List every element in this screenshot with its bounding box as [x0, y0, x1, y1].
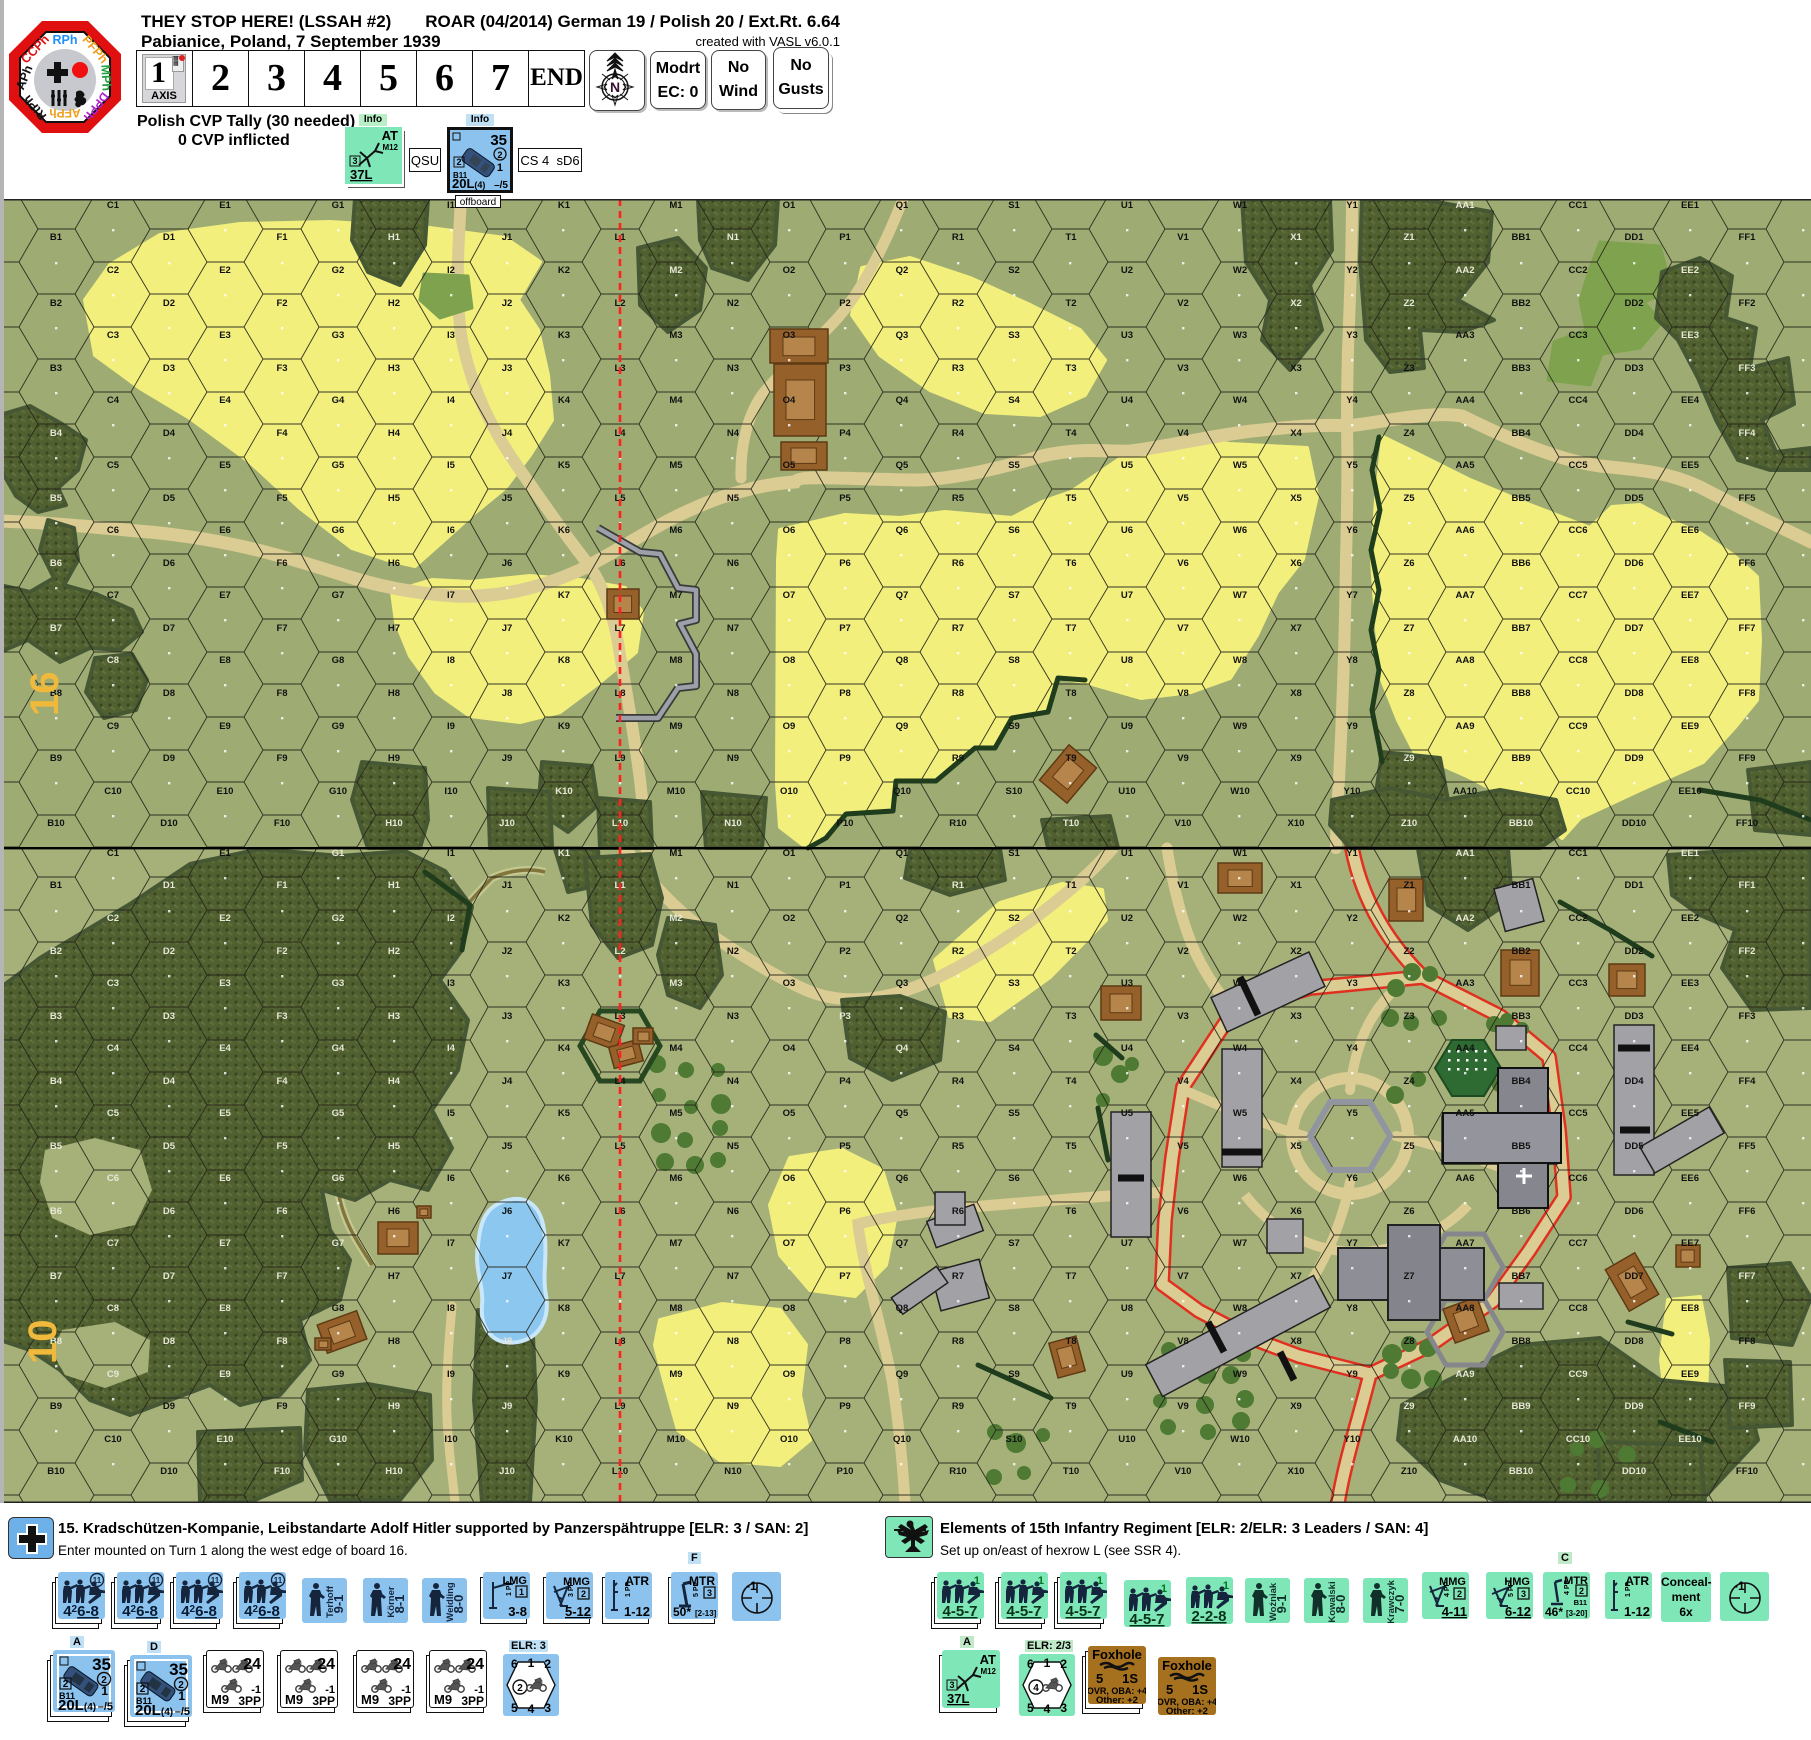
svg-text:EE5: EE5	[1681, 1108, 1700, 1119]
svg-text:F2: F2	[276, 298, 287, 309]
svg-text:EE7: EE7	[1681, 1238, 1699, 1249]
svg-text:AT: AT	[980, 1652, 996, 1667]
svg-text:E4: E4	[219, 1043, 231, 1054]
svg-text:I4: I4	[447, 1043, 456, 1054]
svg-text:BB2: BB2	[1511, 946, 1530, 957]
svg-text:FF6: FF6	[1739, 1206, 1756, 1217]
svg-text:V6: V6	[1177, 1206, 1189, 1217]
svg-text:D9: D9	[163, 1401, 175, 1412]
svg-text:D5: D5	[163, 493, 176, 504]
svg-text:T3: T3	[1065, 1011, 1076, 1022]
svg-text:K4: K4	[558, 395, 571, 406]
svg-text:M2: M2	[669, 265, 682, 276]
svg-text:B1: B1	[50, 232, 63, 243]
svg-text:N10: N10	[724, 818, 741, 829]
svg-text:S4: S4	[1008, 1043, 1020, 1054]
svg-text:24: 24	[466, 1656, 484, 1673]
svg-text:K8: K8	[558, 655, 570, 666]
svg-text:Foxhole: Foxhole	[1092, 1647, 1142, 1662]
svg-text:R2: R2	[952, 946, 964, 957]
svg-text:S4: S4	[1008, 395, 1020, 406]
svg-text:FF7: FF7	[1739, 1271, 1756, 1282]
svg-text:C1: C1	[107, 200, 120, 211]
svg-text:C5: C5	[107, 1108, 120, 1119]
svg-text:P3: P3	[839, 363, 851, 374]
svg-text:Z9: Z9	[1403, 753, 1414, 764]
svg-text:AA1: AA1	[1455, 200, 1475, 211]
svg-text:M1: M1	[669, 848, 683, 859]
svg-text:V7: V7	[1177, 1271, 1189, 1282]
svg-text:1 PP: 1 PP	[1625, 1581, 1632, 1597]
svg-text:BB1: BB1	[1511, 880, 1531, 891]
svg-text:Z3: Z3	[1403, 363, 1414, 374]
svg-text:3: 3	[352, 156, 357, 166]
svg-text:10: 10	[21, 1320, 65, 1365]
svg-text:S1: S1	[1008, 200, 1020, 211]
svg-text:C4: C4	[107, 395, 120, 406]
svg-text:EE3: EE3	[1681, 330, 1699, 341]
svg-text:Q2: Q2	[896, 913, 909, 924]
svg-text:AT: AT	[382, 128, 398, 143]
svg-text:W9: W9	[1233, 1369, 1247, 1380]
svg-text:2: 2	[456, 157, 461, 167]
svg-text:24: 24	[317, 1656, 335, 1673]
svg-text:R4: R4	[952, 428, 965, 439]
svg-text:E6: E6	[219, 1173, 231, 1184]
svg-text:H3: H3	[388, 1011, 400, 1022]
svg-text:BB8: BB8	[1511, 1336, 1530, 1347]
svg-text:U2: U2	[1121, 913, 1133, 924]
svg-text:M8: M8	[669, 1303, 682, 1314]
svg-text:E9: E9	[219, 721, 231, 732]
svg-text:V10: V10	[1175, 1466, 1192, 1477]
svg-text:E2: E2	[219, 913, 231, 924]
svg-text:I2: I2	[447, 265, 455, 276]
svg-text:W7: W7	[1233, 1238, 1247, 1249]
svg-text:3: 3	[949, 1680, 954, 1690]
svg-text:B4: B4	[50, 1076, 63, 1087]
svg-text:W5: W5	[1233, 1108, 1248, 1119]
svg-text:O3: O3	[783, 978, 796, 989]
svg-text:EE5: EE5	[1681, 460, 1700, 471]
svg-text:U6: U6	[1121, 1173, 1133, 1184]
svg-text:5 PP: 5 PP	[1508, 1581, 1515, 1597]
svg-text:C9: C9	[107, 1369, 119, 1380]
svg-text:H2: H2	[388, 946, 400, 957]
svg-text:B2: B2	[50, 946, 62, 957]
svg-text:G3: G3	[332, 978, 345, 989]
svg-text:Q8: Q8	[896, 655, 909, 666]
svg-text:S2: S2	[1008, 913, 1020, 924]
svg-text:X8: X8	[1290, 1336, 1302, 1347]
svg-text:AA9: AA9	[1455, 1369, 1474, 1380]
svg-text:T10: T10	[1063, 818, 1079, 829]
svg-text:X5: X5	[1290, 1141, 1302, 1152]
svg-text:2: 2	[63, 1679, 69, 1690]
svg-text:P9: P9	[839, 753, 851, 764]
svg-text:O4: O4	[783, 1043, 796, 1054]
svg-text:5: 5	[1166, 1682, 1173, 1697]
svg-text:D7: D7	[163, 623, 175, 634]
svg-text:3PP: 3PP	[238, 1694, 261, 1708]
svg-text:AA6: AA6	[1455, 1173, 1474, 1184]
svg-text:U4: U4	[1121, 395, 1134, 406]
svg-text:R9: R9	[952, 753, 964, 764]
svg-text:FF2: FF2	[1739, 298, 1756, 309]
svg-text:Y4: Y4	[1346, 1043, 1358, 1054]
svg-text:O1: O1	[783, 848, 796, 859]
svg-text:DD7: DD7	[1624, 1271, 1643, 1282]
svg-text:AA8: AA8	[1455, 655, 1474, 666]
svg-text:P3: P3	[839, 1011, 851, 1022]
svg-text:H5: H5	[388, 1141, 401, 1152]
svg-text:R7: R7	[952, 1271, 964, 1282]
svg-text:Y9: Y9	[1346, 1369, 1358, 1380]
svg-text:N5: N5	[727, 493, 740, 504]
svg-text:DD4: DD4	[1624, 1076, 1644, 1087]
svg-text:Z9: Z9	[1403, 1401, 1414, 1412]
svg-text:G3: G3	[332, 330, 345, 341]
svg-text:I8: I8	[447, 1303, 455, 1314]
svg-text:V2: V2	[1177, 946, 1189, 957]
svg-text:Q10: Q10	[893, 786, 911, 797]
svg-text:Q10: Q10	[893, 1434, 911, 1445]
svg-text:V5: V5	[1177, 493, 1189, 504]
svg-text:FF4: FF4	[1739, 428, 1757, 439]
svg-text:R8: R8	[952, 688, 964, 699]
svg-text:Z7: Z7	[1403, 1271, 1414, 1282]
svg-text:I10: I10	[444, 786, 457, 797]
svg-text:FF6: FF6	[1739, 558, 1756, 569]
svg-text:2: 2	[1060, 1657, 1067, 1671]
svg-text:CC1: CC1	[1568, 200, 1588, 211]
svg-text:N6: N6	[727, 558, 739, 569]
svg-text:FF2: FF2	[1739, 946, 1756, 957]
svg-text:426-8: 426-8	[181, 1603, 217, 1619]
svg-text:Y8: Y8	[1346, 1303, 1358, 1314]
svg-text:P2: P2	[839, 298, 851, 309]
svg-text:G9: G9	[332, 1369, 345, 1380]
svg-text:Z2: Z2	[1403, 946, 1414, 957]
svg-text:H3: H3	[388, 363, 400, 374]
svg-text:DD4: DD4	[1624, 428, 1644, 439]
svg-text:S10: S10	[1006, 786, 1023, 797]
svg-text:P10: P10	[837, 818, 854, 829]
svg-text:M7: M7	[669, 1238, 682, 1249]
svg-text:J7: J7	[502, 623, 513, 634]
svg-text:V4: V4	[1177, 428, 1189, 439]
svg-text:U8: U8	[1121, 1303, 1133, 1314]
svg-text:5: 5	[511, 1701, 518, 1715]
svg-text:EE1: EE1	[1681, 200, 1700, 211]
svg-text:I6: I6	[447, 525, 455, 536]
svg-text:G8: G8	[332, 655, 345, 666]
svg-text:S7: S7	[1008, 1238, 1020, 1249]
svg-text:U10: U10	[1118, 1434, 1135, 1445]
svg-text:X4: X4	[1290, 1076, 1302, 1087]
svg-text:H7: H7	[388, 623, 400, 634]
svg-text:3PP: 3PP	[461, 1694, 484, 1708]
svg-text:AA7: AA7	[1455, 590, 1474, 601]
svg-text:B7: B7	[50, 1271, 62, 1282]
svg-text:N4: N4	[727, 1076, 740, 1087]
svg-text:I2: I2	[447, 913, 455, 924]
svg-text:H4: H4	[388, 428, 401, 439]
svg-text:9-1: 9-1	[331, 1595, 346, 1614]
svg-text:EE2: EE2	[1681, 265, 1699, 276]
svg-text:Y3: Y3	[1346, 978, 1358, 989]
svg-text:BB1: BB1	[1511, 232, 1531, 243]
svg-text:3: 3	[1521, 1589, 1526, 1599]
svg-text:2-2-8: 2-2-8	[1191, 1608, 1226, 1624]
svg-text:G5: G5	[332, 1108, 345, 1119]
svg-text:F3: F3	[276, 363, 287, 374]
svg-text:J9: J9	[502, 1401, 513, 1412]
svg-text:Q5: Q5	[896, 1108, 909, 1119]
svg-text:20L(4): 20L(4)	[452, 176, 485, 190]
svg-text:B7: B7	[50, 623, 62, 634]
svg-text:FF9: FF9	[1739, 753, 1756, 764]
svg-text:G1: G1	[332, 848, 345, 859]
svg-text:O2: O2	[783, 265, 796, 276]
svg-text:U10: U10	[1118, 786, 1135, 797]
svg-text:T2: T2	[1065, 946, 1076, 957]
svg-text:C3: C3	[107, 330, 119, 341]
svg-text:I8: I8	[447, 655, 455, 666]
svg-text:T10: T10	[1063, 1466, 1079, 1477]
svg-text:EE9: EE9	[1681, 721, 1699, 732]
svg-text:C7: C7	[107, 590, 119, 601]
svg-text:O7: O7	[783, 590, 796, 601]
svg-text:DD8: DD8	[1624, 1336, 1643, 1347]
svg-text:M5: M5	[669, 460, 683, 471]
svg-text:T4: T4	[1065, 1076, 1077, 1087]
svg-text:I4: I4	[447, 395, 456, 406]
svg-text:E4: E4	[219, 395, 231, 406]
svg-text:BB3: BB3	[1511, 1011, 1530, 1022]
svg-text:V5: V5	[1177, 1141, 1189, 1152]
svg-text:EE9: EE9	[1681, 1369, 1699, 1380]
svg-text:V6: V6	[1177, 558, 1189, 569]
svg-text:AA2: AA2	[1455, 913, 1474, 924]
svg-text:P8: P8	[839, 688, 851, 699]
svg-text:E9: E9	[219, 1369, 231, 1380]
svg-text:T9: T9	[1065, 753, 1076, 764]
svg-text:V1: V1	[1177, 880, 1189, 891]
svg-text:FF3: FF3	[1739, 1011, 1756, 1022]
svg-text:K3: K3	[558, 978, 570, 989]
svg-text:U1: U1	[1121, 848, 1134, 859]
svg-text:S6: S6	[1008, 1173, 1020, 1184]
svg-text:2: 2	[581, 1589, 586, 1599]
svg-text:E8: E8	[219, 1303, 231, 1314]
svg-text:F5: F5	[276, 493, 288, 504]
svg-text:Z4: Z4	[1403, 1076, 1415, 1087]
svg-text:G2: G2	[332, 913, 345, 924]
svg-text:W10: W10	[1230, 786, 1250, 797]
svg-text:Q6: Q6	[896, 1173, 909, 1184]
svg-text:M5: M5	[669, 1108, 683, 1119]
svg-text:CC8: CC8	[1568, 1303, 1587, 1314]
svg-text:AA1: AA1	[1455, 848, 1475, 859]
svg-text:F8: F8	[276, 688, 287, 699]
svg-text:FF1: FF1	[1739, 232, 1757, 243]
svg-text:X7: X7	[1290, 1271, 1302, 1282]
svg-text:P4: P4	[839, 428, 851, 439]
svg-text:D1: D1	[163, 880, 176, 891]
svg-text:CC8: CC8	[1568, 655, 1587, 666]
svg-text:DD10: DD10	[1622, 1466, 1646, 1477]
svg-text:M6: M6	[669, 525, 682, 536]
svg-text:P4: P4	[839, 1076, 851, 1087]
svg-text:DD1: DD1	[1624, 232, 1644, 243]
svg-text:11: 11	[274, 1576, 283, 1585]
svg-text:M4: M4	[669, 1043, 683, 1054]
svg-text:5-12: 5-12	[565, 1604, 591, 1619]
svg-text:O2: O2	[783, 913, 796, 924]
svg-text:O10: O10	[780, 1434, 798, 1445]
svg-text:RPh: RPh	[53, 33, 78, 47]
svg-text:F5: F5	[276, 1141, 288, 1152]
svg-text:11: 11	[93, 1576, 102, 1585]
svg-text:DD5: DD5	[1624, 493, 1644, 504]
svg-text:C4: C4	[107, 1043, 120, 1054]
svg-text:C3: C3	[107, 978, 119, 989]
svg-text:Y10: Y10	[1344, 1434, 1361, 1445]
svg-text:W3: W3	[1233, 978, 1247, 989]
svg-text:AA9: AA9	[1455, 721, 1474, 732]
svg-text:37L: 37L	[350, 167, 372, 182]
svg-text:1: 1	[1038, 1575, 1044, 1587]
svg-text:B3: B3	[50, 1011, 62, 1022]
svg-text:V3: V3	[1177, 363, 1189, 374]
svg-text:Y3: Y3	[1346, 330, 1358, 341]
svg-text:P2: P2	[839, 946, 851, 957]
svg-text:S9: S9	[1008, 1369, 1020, 1380]
svg-text:P8: P8	[839, 1336, 851, 1347]
svg-text:Q4: Q4	[896, 1043, 909, 1054]
svg-text:H8: H8	[388, 1336, 400, 1347]
svg-text:CC6: CC6	[1568, 525, 1587, 536]
svg-text:W3: W3	[1233, 330, 1247, 341]
svg-text:S10: S10	[1006, 1434, 1023, 1445]
svg-text:4-5-7: 4-5-7	[1065, 1603, 1100, 1619]
svg-text:Z10: Z10	[1401, 1466, 1417, 1477]
svg-text:7-0: 7-0	[1392, 1595, 1407, 1614]
svg-text:J5: J5	[502, 1141, 513, 1152]
svg-text:E7: E7	[219, 590, 231, 601]
svg-text:35: 35	[92, 1655, 111, 1674]
svg-text:J4: J4	[502, 428, 513, 439]
svg-text:Z4: Z4	[1403, 428, 1415, 439]
svg-text:X7: X7	[1290, 623, 1302, 634]
svg-text:X10: X10	[1288, 818, 1305, 829]
svg-text:N9: N9	[727, 1401, 739, 1412]
svg-text:Y6: Y6	[1346, 1173, 1358, 1184]
svg-text:3PP: 3PP	[388, 1694, 411, 1708]
svg-text:V10: V10	[1175, 818, 1192, 829]
svg-text:H8: H8	[388, 688, 400, 699]
svg-text:O4: O4	[783, 395, 796, 406]
svg-text:EE2: EE2	[1681, 913, 1699, 924]
svg-text:N9: N9	[727, 753, 739, 764]
svg-text:1: 1	[528, 1656, 535, 1670]
svg-text:3-8: 3-8	[508, 1604, 527, 1619]
svg-text:M2: M2	[669, 913, 682, 924]
svg-text:S6: S6	[1008, 525, 1020, 536]
svg-text:3: 3	[707, 1588, 712, 1598]
svg-text:N8: N8	[727, 688, 739, 699]
svg-text:I7: I7	[447, 590, 455, 601]
svg-text:CC4: CC4	[1568, 395, 1588, 406]
svg-text:1S: 1S	[1192, 1682, 1208, 1697]
svg-text:8-1: 8-1	[392, 1595, 407, 1614]
svg-text:BB8: BB8	[1511, 688, 1530, 699]
svg-text:35: 35	[169, 1660, 188, 1679]
svg-text:FF5: FF5	[1739, 493, 1757, 504]
svg-text:O8: O8	[783, 655, 796, 666]
svg-text:1: 1	[1161, 1583, 1167, 1595]
svg-text:J9: J9	[502, 753, 513, 764]
svg-text:V3: V3	[1177, 1011, 1189, 1022]
svg-text:E7: E7	[219, 1238, 231, 1249]
svg-text:4-5-7: 4-5-7	[1006, 1603, 1041, 1619]
svg-text:G1: G1	[332, 200, 345, 211]
svg-text:O10: O10	[780, 786, 798, 797]
svg-text:3: 3	[1060, 1701, 1067, 1715]
svg-text:N6: N6	[727, 1206, 739, 1217]
svg-text:4-5-7: 4-5-7	[1129, 1611, 1164, 1627]
svg-text:V9: V9	[1177, 753, 1189, 764]
svg-text:M9: M9	[285, 1692, 303, 1707]
svg-text:FF3: FF3	[1739, 363, 1756, 374]
svg-text:4: 4	[1033, 1683, 1039, 1694]
svg-text:F9: F9	[276, 1401, 287, 1412]
svg-text:DD9: DD9	[1624, 1401, 1643, 1412]
svg-text:BB5: BB5	[1511, 493, 1531, 504]
svg-text:Y5: Y5	[1346, 1108, 1358, 1119]
svg-text:Q4: Q4	[896, 395, 909, 406]
svg-text:F6: F6	[276, 1206, 287, 1217]
svg-text:N8: N8	[727, 1336, 739, 1347]
svg-text:F4: F4	[276, 428, 288, 439]
svg-text:1: 1	[974, 1575, 980, 1587]
svg-text:D3: D3	[163, 1011, 175, 1022]
svg-text:B2: B2	[50, 298, 62, 309]
svg-text:J8: J8	[502, 1336, 513, 1347]
svg-text:B6: B6	[50, 558, 62, 569]
svg-text:DD6: DD6	[1624, 1206, 1643, 1217]
svg-text:[2-13]: [2-13]	[695, 1609, 717, 1618]
svg-text:R5: R5	[952, 493, 965, 504]
svg-text:50*: 50*	[673, 1605, 691, 1619]
svg-text:W4: W4	[1233, 1043, 1248, 1054]
svg-text:–/5: –/5	[175, 1706, 190, 1717]
svg-text:G6: G6	[332, 525, 345, 536]
svg-text:2: 2	[1579, 1586, 1584, 1596]
svg-text:E8: E8	[219, 655, 231, 666]
svg-text:BB6: BB6	[1511, 1206, 1530, 1217]
svg-text:37L: 37L	[947, 1691, 969, 1706]
svg-text:CC3: CC3	[1568, 978, 1587, 989]
svg-text:W7: W7	[1233, 590, 1247, 601]
svg-text:4-5-7: 4-5-7	[942, 1603, 977, 1619]
svg-text:Z8: Z8	[1403, 688, 1414, 699]
svg-text:[3-20]: [3-20]	[1566, 1609, 1588, 1618]
svg-text:K7: K7	[558, 590, 570, 601]
svg-text:BB2: BB2	[1511, 298, 1530, 309]
svg-text:G10: G10	[329, 786, 347, 797]
